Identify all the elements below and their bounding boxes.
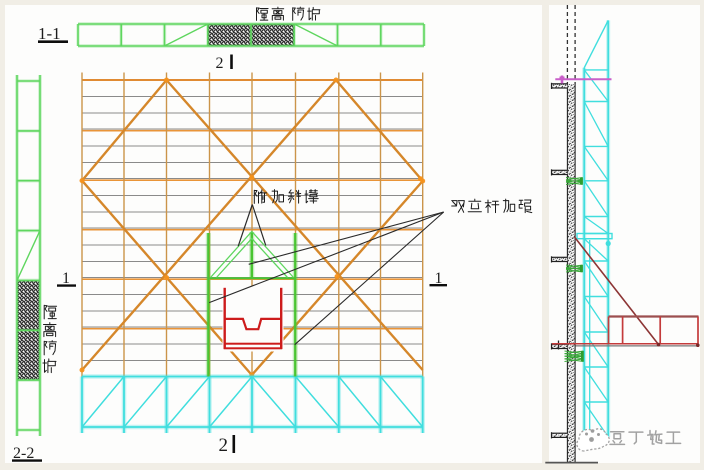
svg-text:2: 2 [219, 435, 229, 456]
svg-text:1-1: 1-1 [38, 24, 61, 43]
svg-text:2: 2 [216, 55, 224, 72]
